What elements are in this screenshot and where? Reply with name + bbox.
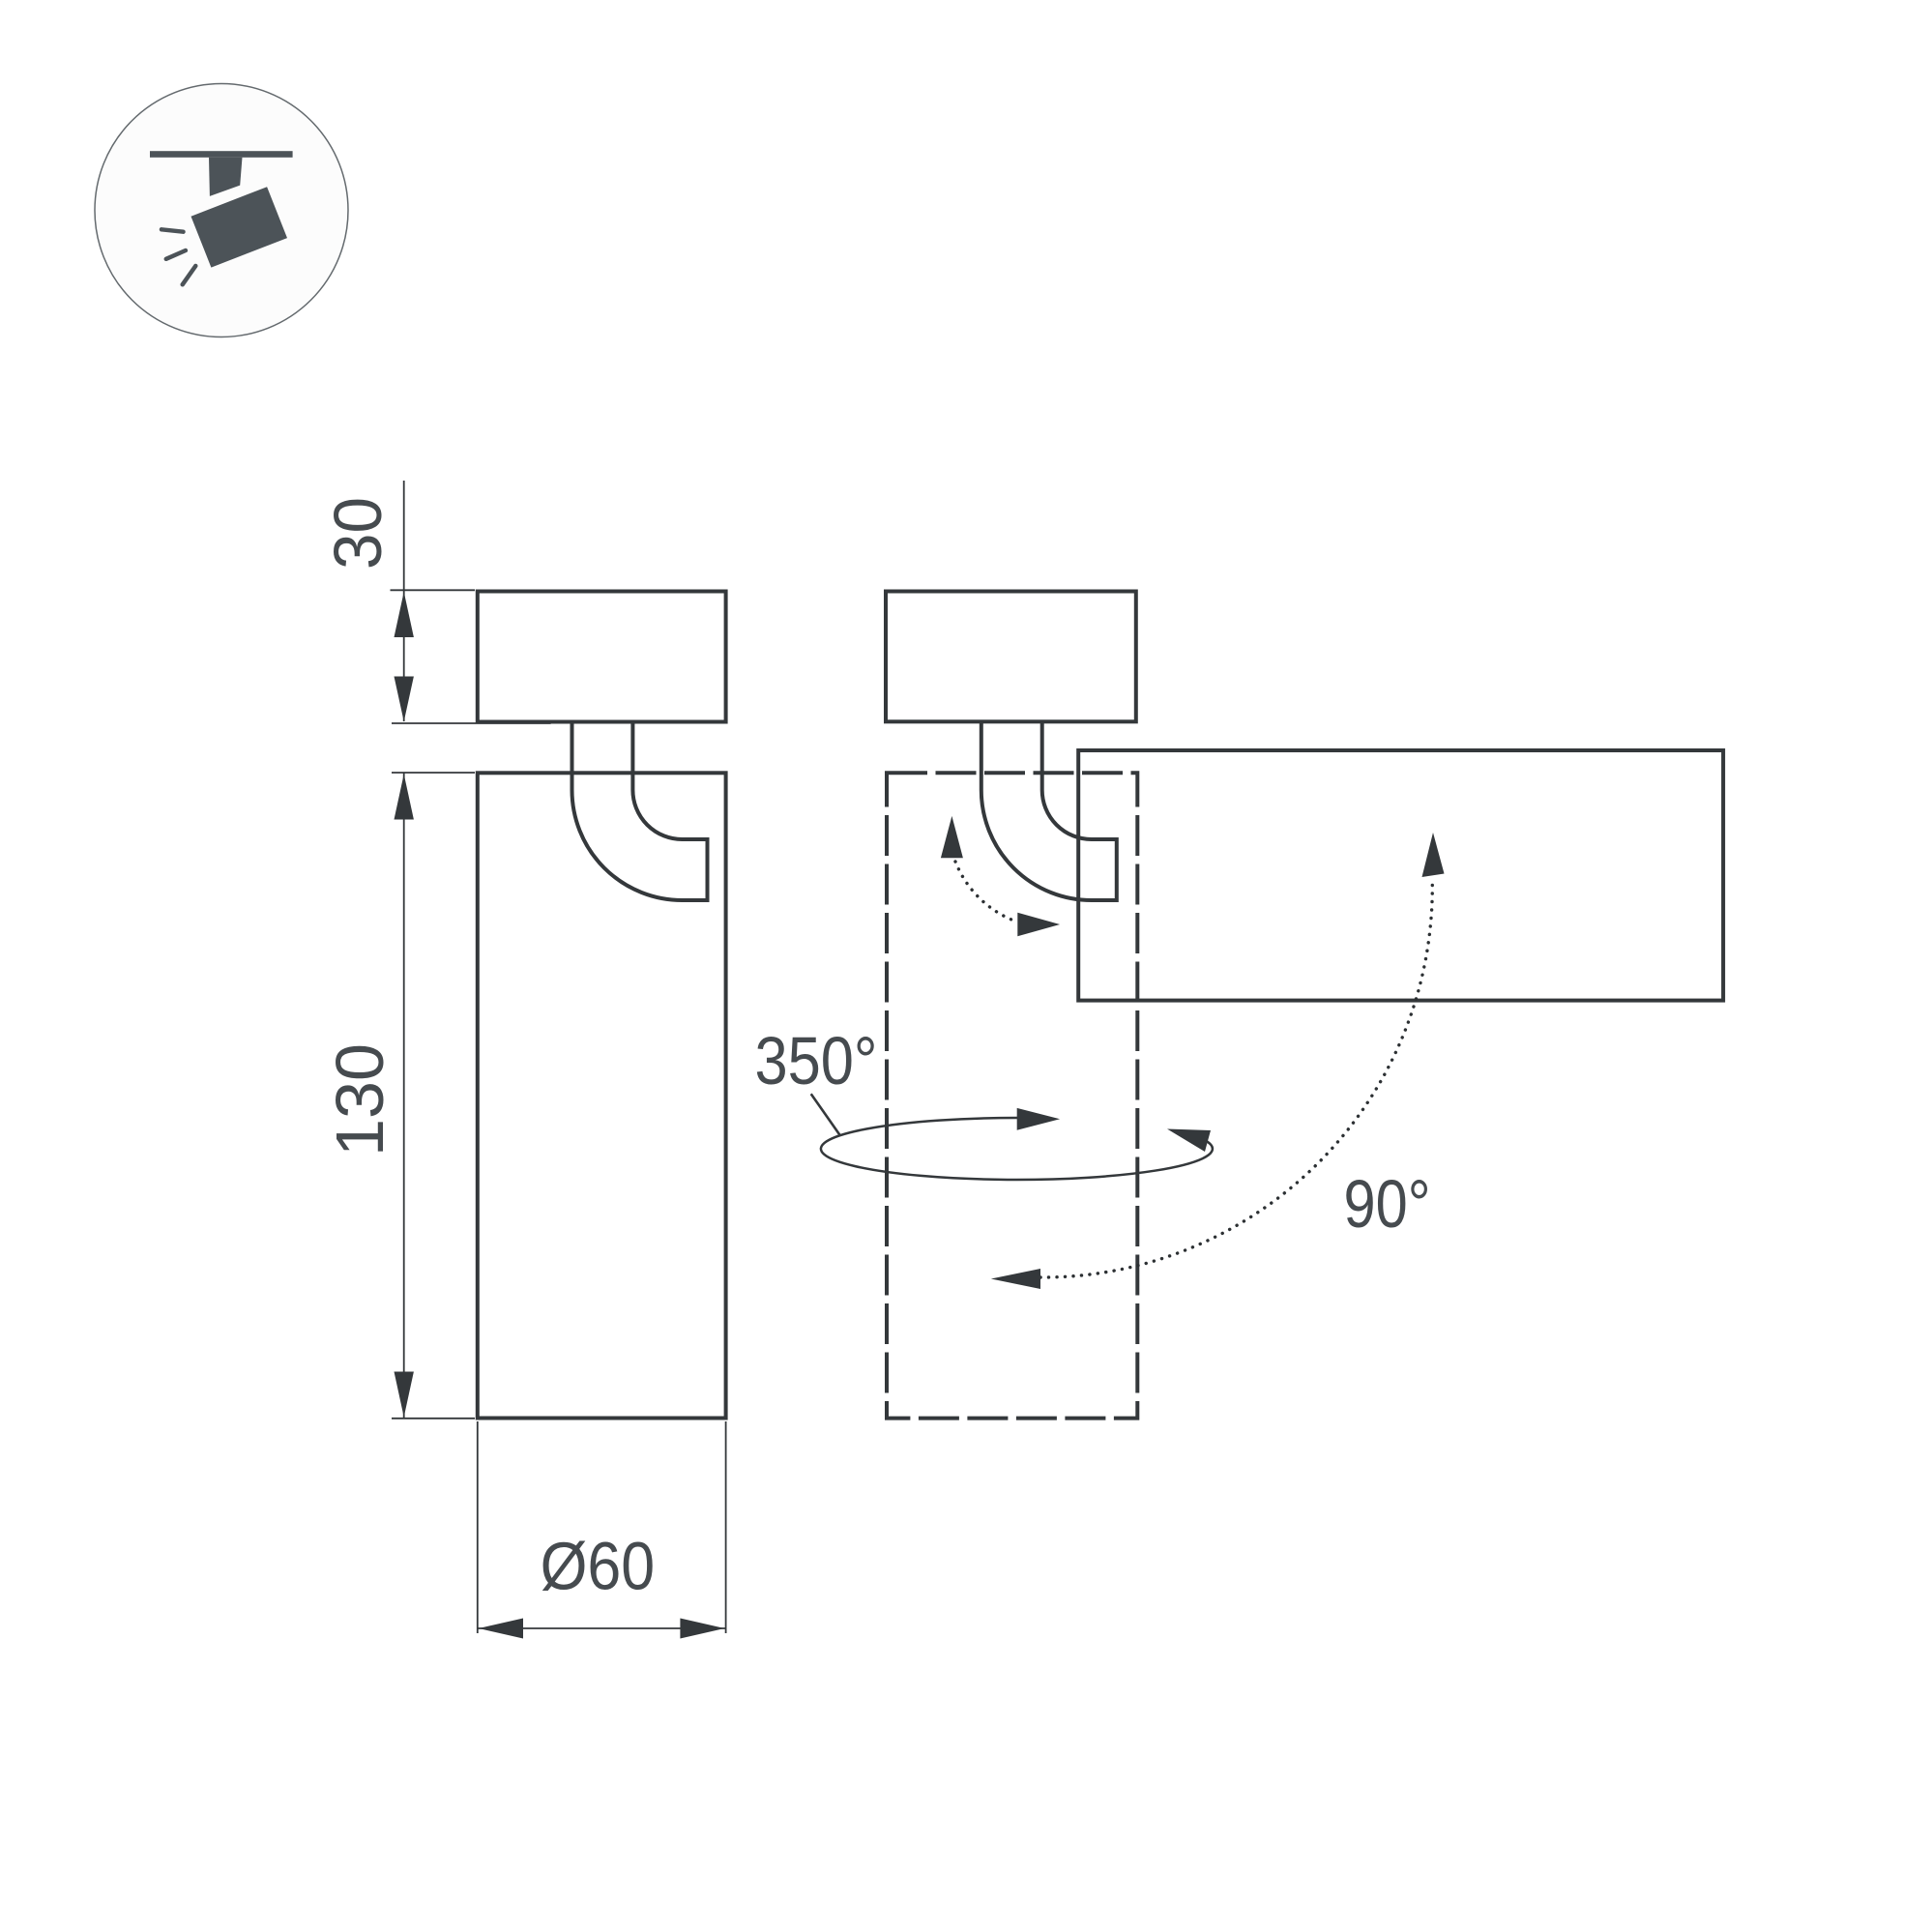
svg-text:Ø60: Ø60 (541, 1529, 656, 1604)
svg-text:30: 30 (320, 497, 395, 570)
svg-text:90°: 90° (1344, 1166, 1431, 1242)
svg-text:130: 130 (322, 1043, 397, 1156)
svg-text:350°: 350° (755, 1023, 878, 1098)
